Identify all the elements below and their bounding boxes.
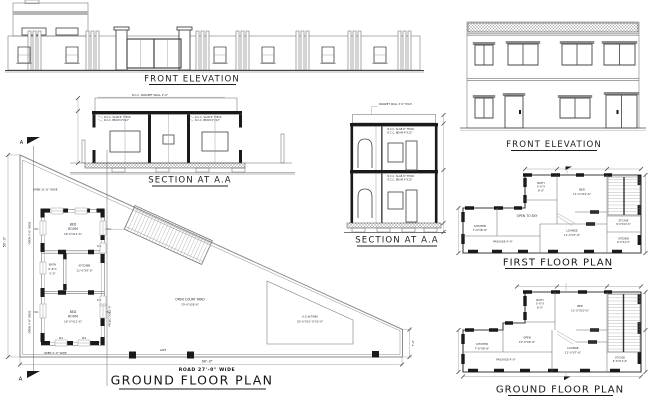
right-section-title: SECTION AT A.A xyxy=(355,236,439,246)
svg-text:U.G.W.TANK: U.G.W.TANK xyxy=(302,315,318,319)
main-plan-title: GROUND FLOOR PLAN xyxy=(111,373,274,388)
svg-text:ROOM: ROOM xyxy=(68,315,78,319)
window-mark-w2c: W.2 xyxy=(59,337,64,340)
svg-text:11'-0"X7'-6": 11'-0"X7'-6" xyxy=(565,350,581,354)
svg-text:ST-CASE: ST-CASE xyxy=(619,219,629,222)
section2-window-lower xyxy=(388,192,403,209)
tower-band xyxy=(13,11,88,15)
ground-floor-title: GROUND FLOOR PLAN xyxy=(496,385,624,396)
section2-door-lower xyxy=(406,190,417,222)
svg-text:8'-0"X13'-6": 8'-0"X13'-6" xyxy=(613,360,627,363)
left-section: R.C.C. PARAPET WALL 2'-0" R.C.C. SLAB 6"… xyxy=(70,93,295,186)
window-mark-w1: W.1 xyxy=(34,228,39,231)
svg-text:BED: BED xyxy=(70,310,77,314)
plot-height-dim: 50'-3" xyxy=(3,236,7,247)
left-elevation-title: FRONT ELEVATION xyxy=(144,75,240,85)
right-dim: 7'-0" xyxy=(403,328,416,360)
open-court-yard-label: OPEN COURT YARD 70'-0"X28'-6" xyxy=(175,298,205,307)
cad-drawing: FRONT ELEVATION R.C.C. PARAPET WALL 2'-0… xyxy=(0,0,650,400)
plot-width-dim: 90'-3" xyxy=(202,360,213,364)
svg-text:11'-0"X10'-6": 11'-0"X10'-6" xyxy=(571,308,589,312)
open-left-label-2: OPEN 3'-6" WIDE xyxy=(28,310,32,333)
svg-text:OPEN TO SKY: OPEN TO SKY xyxy=(517,214,538,218)
window-mark-w1b: W.1 xyxy=(34,311,39,314)
beam-note-2: R.C.C. BEAM 9"X12" xyxy=(195,118,220,122)
right-edge-dim: 7'-0" xyxy=(411,340,415,346)
section-marker-flag-top xyxy=(27,137,40,144)
first-floor-title: FIRST FLOOR PLAN xyxy=(503,258,613,269)
svg-text:BATH: BATH xyxy=(49,263,56,267)
bottom-dim: 90'-3" ROAD 27'-0" WIDE xyxy=(18,357,404,373)
arched-door-lower xyxy=(358,189,372,218)
open-top-label: OPEN 11'-6" WIDE xyxy=(33,188,58,192)
section-dim-line xyxy=(76,96,80,165)
left-front-elevation: FRONT ELEVATION xyxy=(5,0,424,85)
svg-text:ROOM: ROOM xyxy=(68,227,78,231)
svg-text:6'-0": 6'-0" xyxy=(537,305,543,309)
boundary-post xyxy=(372,351,379,358)
small-ground-floor-plan: BATH 5'-0"X 6'-0" BED 11'-0"X10'-6" OPEN… xyxy=(457,283,648,396)
parapet-note: PARAPET WALL 3'-0" HIGH xyxy=(379,102,412,106)
elevation-windows-doors xyxy=(475,44,637,128)
bed-room-2-label: BED ROOM 16'-0"X11'-6" xyxy=(64,310,82,323)
staircase xyxy=(124,206,212,265)
first-floor-plan: BATH 5'-0"X 6'-0" BED 11'-0"X10'-6" ST-C… xyxy=(457,166,648,269)
section2-door-upper xyxy=(406,141,417,170)
projection-label: PROJECTION 2'-0" xyxy=(109,305,112,326)
left-dim: 50'-3" xyxy=(3,153,21,359)
parapet-label: R.C.C. PARAPET WALL 2'-0" xyxy=(132,93,168,97)
svg-text:11'-0"X10'-6": 11'-0"X10'-6" xyxy=(573,192,591,196)
plinth2-hatch xyxy=(347,223,441,228)
svg-text:8'-0"X13'-6": 8'-0"X13'-6" xyxy=(616,223,630,226)
section-marker-a-top: A xyxy=(20,140,24,146)
svg-text:KITCHEN: KITCHEN xyxy=(79,264,91,268)
svg-text:PASSAGE 4'-0": PASSAGE 4'-0" xyxy=(496,358,516,362)
section2-window-upper xyxy=(388,143,403,162)
svg-text:70'-0"X28'-6": 70'-0"X28'-6" xyxy=(181,303,199,307)
svg-text:OPEN COURT YARD: OPEN COURT YARD xyxy=(175,298,205,302)
arched-door-upper xyxy=(358,139,372,168)
window-mark-w2d: W.2 xyxy=(82,337,87,340)
gate xyxy=(114,27,192,70)
svg-text:KITCHEN: KITCHEN xyxy=(618,238,629,241)
svg-text:7'-6"X8'-6": 7'-6"X8'-6" xyxy=(473,228,488,232)
wall-pilasters xyxy=(28,31,411,70)
svg-text:BED: BED xyxy=(70,223,77,227)
drawing-sheet: FRONT ELEVATION R.C.C. PARAPET WALL 2'-0… xyxy=(0,0,650,400)
door-mark-d1: D.1 xyxy=(97,245,102,248)
plot-boundary-inner xyxy=(23,160,401,355)
right-elevation-title: FRONT ELEVATION xyxy=(506,140,602,150)
gate-post-left xyxy=(129,352,136,359)
right-section: PARAPET WALL 3'-0" HIGH R.C.C. SLAB 6" T… xyxy=(344,102,446,246)
beam-note-u: R.C.C. BEAM 9"X12" xyxy=(388,131,413,135)
bed-room-1-label: BED ROOM 16'-0"X11'-6" xyxy=(64,223,82,236)
section-marker-a-bottom: A xyxy=(19,377,23,383)
svg-text:ST-CASE: ST-CASE xyxy=(615,357,625,360)
slab-note-2: R.C.C. SLAB 6" THICK xyxy=(195,115,222,119)
plinth-hatch xyxy=(85,163,245,168)
slab-note: R.C.C. SLAB 6" THICK xyxy=(104,115,131,119)
section-marker-flag-bottom xyxy=(27,371,40,378)
svg-text:6'-6"X: 6'-6"X xyxy=(48,267,56,271)
svg-text:6'-0": 6'-0" xyxy=(538,188,544,192)
section2-slabs-walls xyxy=(350,123,438,223)
svg-text:10'-0"X8'-6": 10'-0"X8'-6" xyxy=(519,340,535,344)
open-bottom-label: OPEN 3'-0" WIDE xyxy=(44,351,67,355)
parapet-hatch-band xyxy=(468,23,638,32)
gate-label: GATE xyxy=(160,349,167,352)
beam-note: R.C.C. BEAM 9"X12" xyxy=(104,118,129,122)
beam-note-l: R.C.C. BEAM 9"X12" xyxy=(388,178,413,182)
svg-text:11'-0"X7'-6": 11'-0"X7'-6" xyxy=(564,233,580,237)
gate-post-right xyxy=(187,352,194,359)
svg-text:16'-0"X11'-6": 16'-0"X11'-6" xyxy=(64,319,82,323)
svg-text:16'-0"X11'-6": 16'-0"X11'-6" xyxy=(64,232,82,236)
open-left-label-1: OPEN 3'-6" WIDE xyxy=(28,221,32,244)
door-mark-d1b: D.1 xyxy=(97,299,102,302)
right-front-elevation: FRONT ELEVATION xyxy=(460,22,646,151)
svg-text:5'-0": 5'-0" xyxy=(49,272,55,276)
svg-text:20'-0"X15'-0"X3'-0": 20'-0"X15'-0"X3'-0" xyxy=(297,320,323,324)
section2-dim-line xyxy=(442,113,446,234)
svg-text:PASSAGE 4'-0": PASSAGE 4'-0" xyxy=(493,240,513,244)
svg-text:7'-6"X8'-6": 7'-6"X8'-6" xyxy=(475,346,490,350)
bath-label: BATH 6'-6"X 5'-0" xyxy=(48,263,56,276)
svg-text:11'-0"X9'-0": 11'-0"X9'-0" xyxy=(76,268,92,272)
svg-text:8'-0"X4'-0": 8'-0"X4'-0" xyxy=(617,241,630,244)
kitchen-label: KITCHEN 11'-0"X9'-0" xyxy=(76,264,92,273)
ugw-tank: U.G.W.TANK 20'-0"X15'-0"X3'-0" xyxy=(267,281,353,344)
left-section-title: SECTION AT A.A xyxy=(148,176,232,186)
